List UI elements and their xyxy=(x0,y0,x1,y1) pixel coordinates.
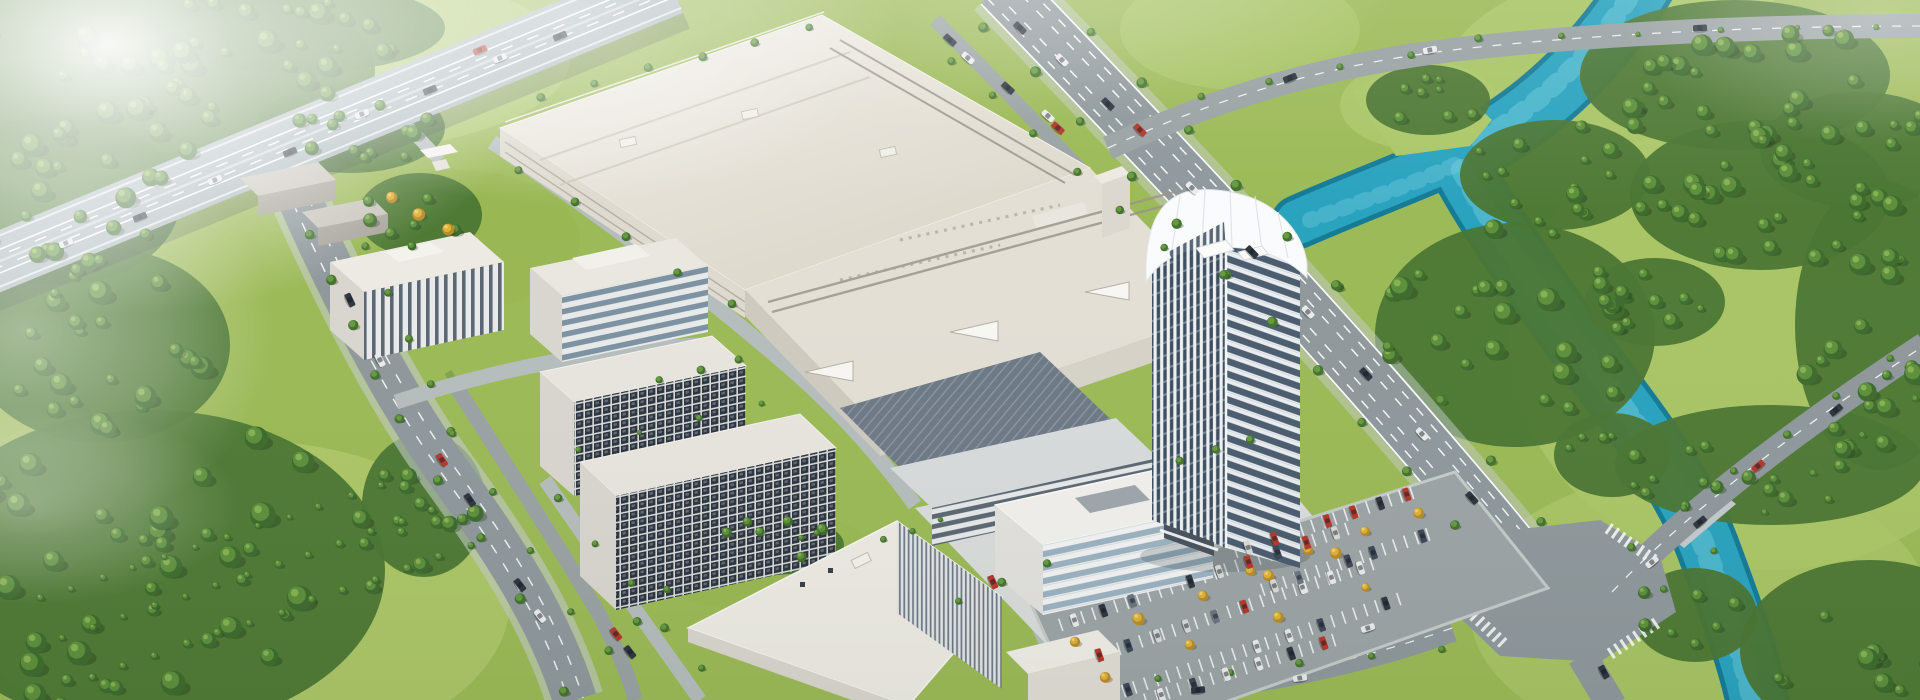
aerial-campus-rendering: Aerial 3D rendering of a large corporate… xyxy=(0,0,1920,700)
campus-scene-svg: Aerial 3D rendering of a large corporate… xyxy=(0,0,1920,700)
atmosphere xyxy=(0,0,1920,700)
